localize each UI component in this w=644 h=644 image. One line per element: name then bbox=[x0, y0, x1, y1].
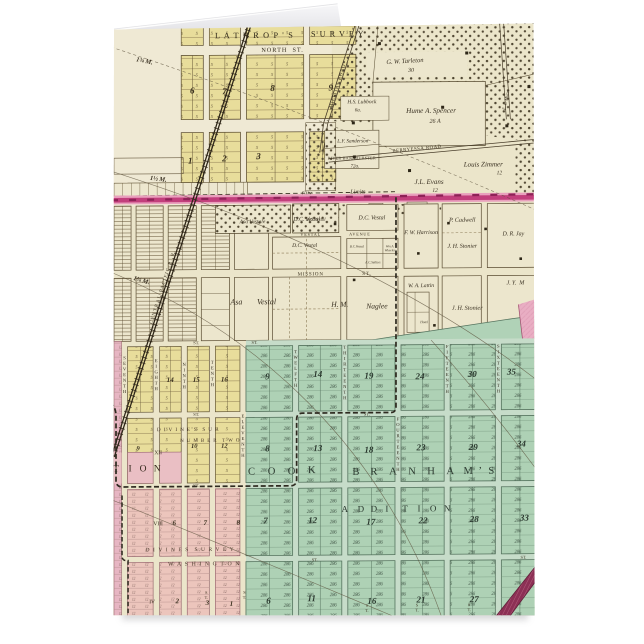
svg-text:D.C. Vestal: D.C. Vestal bbox=[357, 215, 385, 221]
svg-text:17: 17 bbox=[366, 517, 376, 527]
svg-text:9: 9 bbox=[328, 83, 333, 93]
svg-text:11: 11 bbox=[307, 593, 316, 603]
svg-text:O: O bbox=[288, 466, 296, 477]
svg-text:33: 33 bbox=[519, 513, 530, 523]
svg-text:22: 22 bbox=[418, 515, 429, 525]
svg-text:IV: IV bbox=[149, 599, 155, 605]
svg-text:N: N bbox=[154, 464, 161, 474]
svg-text:12: 12 bbox=[497, 170, 503, 176]
svg-text:6: 6 bbox=[190, 86, 195, 96]
svg-text:7: 7 bbox=[204, 519, 208, 527]
svg-text:15: 15 bbox=[193, 376, 201, 384]
svg-text:K: K bbox=[308, 465, 316, 476]
svg-text:R: R bbox=[370, 467, 377, 478]
svg-text:6a.: 6a. bbox=[355, 108, 361, 113]
svg-text:H: H bbox=[427, 466, 435, 477]
svg-text:14: 14 bbox=[167, 376, 175, 384]
svg-text:ST.: ST. bbox=[193, 340, 199, 345]
svg-text:A.C.Sellars: A.C.Sellars bbox=[364, 260, 381, 264]
svg-text:I: I bbox=[128, 464, 131, 474]
svg-text:O: O bbox=[430, 503, 437, 513]
svg-text:AVENUE: AVENUE bbox=[349, 231, 371, 236]
svg-text:ST.: ST. bbox=[252, 340, 258, 345]
svg-text:J. H. Stonier: J. H. Stonier bbox=[447, 244, 477, 250]
svg-text:12: 12 bbox=[308, 515, 318, 525]
svg-text:12: 12 bbox=[432, 188, 438, 194]
svg-text:1: 1 bbox=[188, 156, 193, 166]
svg-text:VIII: VIII bbox=[153, 521, 163, 527]
svg-text:D I V I N E’S S U R: D I V I N E’S S U R bbox=[157, 427, 220, 433]
svg-text:’: ’ bbox=[479, 466, 483, 477]
svg-text:D: D bbox=[371, 504, 378, 514]
svg-text:34: 34 bbox=[516, 439, 527, 449]
svg-text:Asa Vestale: Asa Vestale bbox=[239, 219, 266, 225]
svg-text:P. Cadwell: P. Cadwell bbox=[448, 217, 476, 224]
svg-text:J. H. Stonier: J. H. Stonier bbox=[452, 305, 483, 312]
svg-text:T.: T. bbox=[205, 595, 208, 600]
svg-text:35: 35 bbox=[506, 367, 517, 377]
svg-text:ST.: ST. bbox=[520, 555, 526, 560]
svg-text:24: 24 bbox=[415, 371, 426, 381]
svg-text:N U M B E R T W O: N U M B E R T W O bbox=[180, 439, 240, 444]
svg-text:2: 2 bbox=[221, 153, 227, 163]
svg-text:ST.: ST. bbox=[193, 412, 199, 417]
svg-text:T.: T. bbox=[468, 607, 471, 612]
svg-text:XII: XII bbox=[154, 450, 162, 456]
svg-text:H.S. Lubbock: H.S. Lubbock bbox=[346, 99, 377, 105]
svg-text:J. Y. M: J. Y. M bbox=[507, 280, 526, 286]
svg-text:I: I bbox=[385, 504, 388, 514]
svg-text:Hume A. Spencer: Hume A. Spencer bbox=[405, 107, 456, 115]
svg-text:J.L. Evans: J.L. Evans bbox=[415, 178, 444, 186]
svg-text:10: 10 bbox=[191, 443, 198, 450]
svg-text:29: 29 bbox=[468, 442, 479, 452]
svg-text:Vestal: Vestal bbox=[257, 297, 277, 306]
svg-text:T: T bbox=[402, 503, 408, 513]
svg-text:2: 2 bbox=[174, 597, 179, 605]
svg-text:D. R. Jay: D. R. Jay bbox=[502, 231, 525, 237]
svg-text:8: 8 bbox=[237, 519, 241, 527]
svg-text:D.C. Vestal: D.C. Vestal bbox=[292, 217, 320, 223]
svg-text:1: 1 bbox=[230, 600, 234, 608]
svg-text:H. M.: H. M. bbox=[330, 300, 348, 309]
svg-text:L A T H R O P ' S: L A T H R O P ' S bbox=[215, 31, 294, 41]
svg-text:16: 16 bbox=[367, 596, 377, 606]
svg-text:72a.: 72a. bbox=[350, 164, 359, 169]
svg-text:6: 6 bbox=[266, 596, 271, 606]
svg-text:12: 12 bbox=[221, 443, 228, 450]
svg-text:M: M bbox=[464, 466, 474, 477]
svg-text:W. A. Lattin: W. A. Lattin bbox=[408, 283, 434, 289]
svg-text:19: 19 bbox=[364, 371, 374, 381]
svg-text:13: 13 bbox=[313, 443, 323, 453]
svg-text:B.C.Vestal: B.C.Vestal bbox=[350, 244, 364, 248]
svg-text:S: S bbox=[488, 466, 494, 477]
svg-text:MISSION: MISSION bbox=[298, 272, 324, 277]
svg-text:A: A bbox=[342, 504, 349, 514]
svg-text:7: 7 bbox=[263, 516, 268, 526]
svg-text:ST.: ST. bbox=[312, 557, 318, 562]
svg-text:VESTAL: VESTAL bbox=[300, 232, 321, 237]
svg-text:W A S H I N G T O N: W A S H I N G T O N bbox=[168, 561, 241, 568]
svg-text:30: 30 bbox=[407, 68, 414, 74]
svg-text:Asa: Asa bbox=[229, 297, 242, 306]
svg-text:23: 23 bbox=[416, 442, 427, 452]
svg-text:30: 30 bbox=[467, 369, 478, 379]
svg-text:F. W. Harrison: F. W. Harrison bbox=[403, 230, 438, 236]
svg-text:N: N bbox=[444, 503, 451, 513]
svg-text:T.: T. bbox=[365, 608, 368, 613]
svg-text:8: 8 bbox=[265, 443, 270, 453]
svg-text:C: C bbox=[248, 467, 255, 478]
svg-text:Louis Zimmer: Louis Zimmer bbox=[463, 160, 503, 168]
svg-text:L.F. Sanderson: L.F. Sanderson bbox=[336, 138, 368, 144]
svg-text:3: 3 bbox=[205, 599, 210, 607]
svg-text:14: 14 bbox=[313, 369, 323, 379]
svg-text:A: A bbox=[446, 466, 454, 477]
svg-text:Wheeler: Wheeler bbox=[385, 248, 396, 252]
svg-text:T.: T. bbox=[415, 608, 418, 613]
svg-text:16: 16 bbox=[221, 376, 229, 384]
svg-text:8: 8 bbox=[270, 83, 275, 93]
svg-text:Naglee: Naglee bbox=[365, 301, 388, 310]
svg-text:B: B bbox=[352, 467, 359, 478]
svg-text:26 A: 26 A bbox=[430, 119, 442, 125]
svg-text:Hotel: Hotel bbox=[419, 320, 428, 324]
svg-text:O: O bbox=[268, 466, 276, 477]
svg-text:18: 18 bbox=[364, 445, 374, 455]
svg-text:T.: T. bbox=[243, 595, 246, 600]
svg-text:O: O bbox=[140, 464, 147, 474]
svg-text:I: I bbox=[418, 503, 421, 513]
svg-text:9: 9 bbox=[265, 371, 270, 381]
svg-text:3: 3 bbox=[255, 151, 261, 161]
svg-text:D: D bbox=[358, 504, 365, 514]
svg-text:NORTH ST.: NORTH ST. bbox=[261, 47, 304, 54]
svg-text:D I V I N E S S U R V E Y: D I V I N E S S U R V E Y bbox=[146, 547, 235, 554]
svg-text:N: N bbox=[408, 466, 416, 477]
svg-text:28: 28 bbox=[469, 514, 480, 524]
